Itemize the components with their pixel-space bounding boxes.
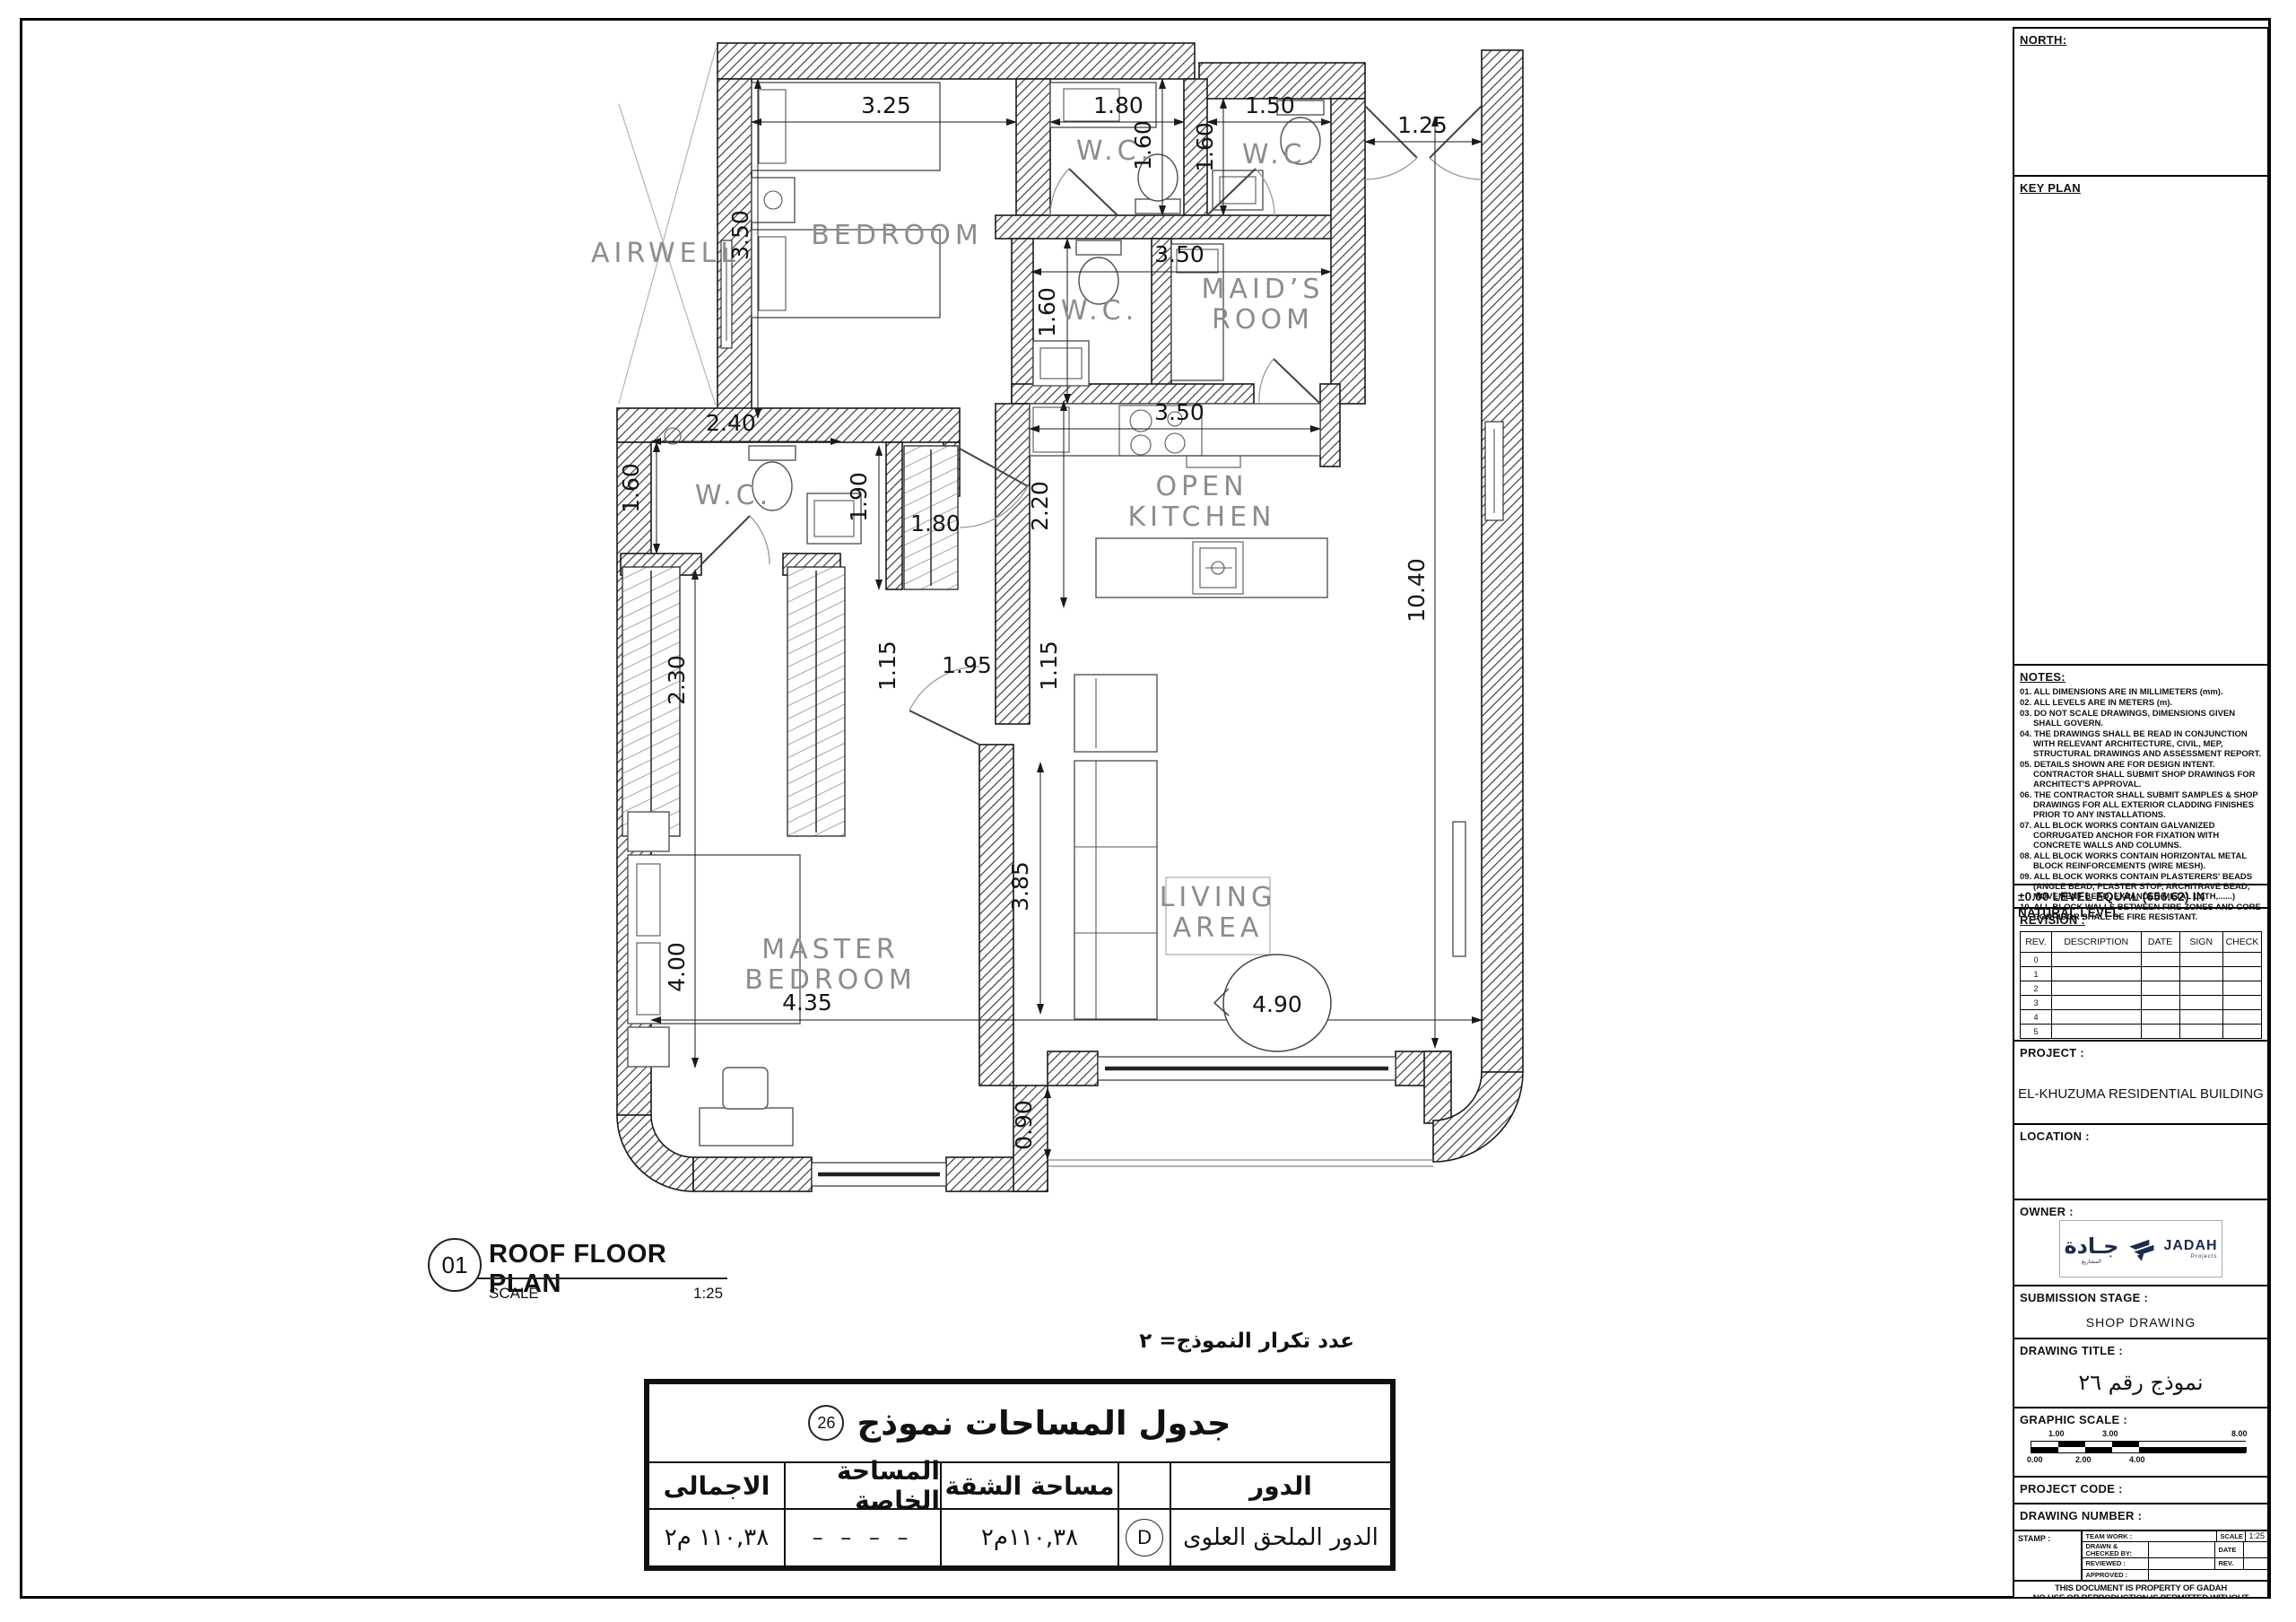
team-work-label: TEAM WORK :	[2083, 1531, 2217, 1541]
owner-logo: جـادة المشاريع JADAH Projects	[2059, 1220, 2222, 1278]
revision-section: REVISION : REV. DESCRIPTION DATE SIGN CH…	[2014, 909, 2267, 1042]
key-plan-section: KEY PLAN	[2014, 177, 2267, 666]
scale-bar-segment	[2058, 1447, 2085, 1452]
submission-section: SUBMISSION STAGE : SHOP DRAWING	[2014, 1286, 2267, 1339]
approved-label: APPROVED :	[2083, 1570, 2149, 1580]
scale-bar-segment	[2031, 1447, 2058, 1452]
revision-table: REV. DESCRIPTION DATE SIGN CHECK 012345	[2020, 931, 2262, 1039]
submission-label: SUBMISSION STAGE :	[2020, 1291, 2148, 1304]
desc-col: DESCRIPTION	[2051, 932, 2141, 953]
scale-tick: 8.00	[2231, 1429, 2248, 1438]
location-section: LOCATION :	[2014, 1125, 2267, 1200]
plan-title: 01 ROOF FLOOR PLAN SCALE 1:25	[422, 1234, 744, 1315]
scale-tick: 3.00	[2102, 1429, 2118, 1438]
cell-total: ١١٠,٣٨ م٢	[649, 1510, 784, 1565]
rev-value	[2244, 1558, 2267, 1568]
revision-empty-cell	[2051, 1025, 2141, 1039]
cell-private: – – – –	[786, 1510, 940, 1565]
scale-tick: 0.00	[2027, 1455, 2043, 1464]
note-item: 06. THE CONTRACTOR SHALL SUBMIT SAMPLES …	[2020, 790, 2262, 820]
revision-empty-cell	[2179, 996, 2222, 1010]
level-note-section: ±0.00 LEVEL EQUAL (656.62) IN NATURAL LE…	[2014, 885, 2267, 909]
scale-tick: 2.00	[2075, 1455, 2092, 1464]
revision-empty-cell	[2179, 967, 2222, 981]
revision-label: REVISION :	[2020, 913, 2085, 927]
revision-empty-cell	[2141, 996, 2179, 1010]
col-flat-area: مساحة الشقة	[942, 1463, 1118, 1508]
revision-empty-cell	[2222, 967, 2261, 981]
title-underline	[478, 1278, 727, 1279]
logo-latin-sub: Projects	[2163, 1254, 2217, 1260]
note-item: 08. ALL BLOCK WORKS CONTAIN HORIZONTAL M…	[2020, 851, 2262, 871]
logo-arabic-text: جـادة المشاريع	[2064, 1234, 2118, 1265]
stamp-section: STAMP : TEAM WORK : SCALE 1:25 DRAWN & C…	[2014, 1531, 2267, 1582]
note-item: 07. ALL BLOCK WORKS CONTAIN GALVANIZED C…	[2020, 821, 2262, 850]
note-item: 03. DO NOT SCALE DRAWINGS, DIMENSIONS GI…	[2020, 709, 2262, 728]
revision-empty-cell	[2141, 953, 2179, 967]
revision-empty-cell	[2222, 1010, 2261, 1025]
col-floor: الدور	[1171, 1463, 1390, 1508]
revision-empty-cell	[2141, 1025, 2179, 1039]
title-block: NORTH: KEY PLAN NOTES: 01. ALL DIMENSION…	[2013, 27, 2269, 1599]
scale-bar-segment	[2112, 1447, 2139, 1452]
project-name: EL-KHUZUMA RESIDENTIAL BUILDING	[2014, 1086, 2267, 1102]
note-item: 02. ALL LEVELS ARE IN METERS (m).	[2020, 698, 2262, 708]
owner-section: OWNER : جـادة المشاريع JADAH Projects	[2014, 1200, 2267, 1286]
scale-cell-label: SCALE	[2217, 1531, 2246, 1541]
note-item: 01. ALL DIMENSIONS ARE IN MILLIMETERS (m…	[2020, 687, 2262, 697]
revision-empty-cell	[2222, 981, 2261, 996]
drawing-sheet: { "plan": { "title": {"number":"01","nam…	[0, 0, 2296, 1622]
revision-empty-cell	[2051, 996, 2141, 1010]
logo-latin-text: JADAH Projects	[2163, 1238, 2217, 1260]
rev-col: REV.	[2021, 932, 2052, 953]
scale-cell-value: 1:25	[2246, 1531, 2267, 1541]
rev-label: REV.	[2215, 1558, 2244, 1568]
owner-label: OWNER :	[2020, 1205, 2074, 1218]
revision-empty-cell	[2222, 996, 2261, 1010]
drawing-title-value: نموذج رقم ٢٦	[2014, 1370, 2267, 1395]
revision-empty-cell	[2179, 1010, 2222, 1025]
project-code-label: PROJECT CODE :	[2020, 1482, 2123, 1496]
revision-empty-cell	[2051, 981, 2141, 996]
drawn-label: DRAWN & CHECKED BY:	[2083, 1542, 2149, 1557]
col-private-area: المساحة الخاصة	[786, 1463, 940, 1508]
sheet-border	[20, 18, 2271, 1599]
project-label: PROJECT :	[2020, 1046, 2084, 1060]
area-table: جدول المساحات نموذج 26 الاجمالى المساحة …	[644, 1379, 1396, 1571]
revision-empty-cell	[2222, 953, 2261, 967]
date-col: DATE	[2141, 932, 2179, 953]
date-label: DATE	[2215, 1542, 2244, 1557]
date-value	[2244, 1542, 2267, 1557]
revision-empty-cell	[2141, 967, 2179, 981]
approved-value	[2149, 1570, 2267, 1580]
cell-floor: الدور الملحق العلوى	[1171, 1510, 1390, 1565]
revision-empty-cell	[2141, 1010, 2179, 1025]
scale-bar-segment	[2139, 1447, 2247, 1452]
jadah-logo-icon	[2126, 1234, 2156, 1264]
revision-row-number: 5	[2021, 1025, 2052, 1039]
footer-line-2: NO USE OR REPRODUCTION IS PERMITTED WITH…	[2016, 1594, 2266, 1599]
stamp-label: STAMP :	[2014, 1531, 2083, 1580]
sign-col: SIGN	[2179, 932, 2222, 953]
north-label: NORTH:	[2020, 33, 2066, 47]
footer-notice: THIS DOCUMENT IS PROPERTY OF GADAH NO US…	[2014, 1582, 2267, 1599]
scale-tick: 1.00	[2048, 1429, 2065, 1438]
scale-label: SCALE	[489, 1285, 539, 1303]
detail-number-bubble: 01	[428, 1238, 482, 1292]
col-badge	[1119, 1463, 1170, 1508]
drawing-title-label: DRAWING TITLE :	[2020, 1344, 2123, 1357]
revision-row-number: 1	[2021, 967, 2052, 981]
project-section: PROJECT : EL-KHUZUMA RESIDENTIAL BUILDIN…	[2014, 1042, 2267, 1125]
graphic-scale-label: GRAPHIC SCALE :	[2020, 1413, 2127, 1426]
notes-section: NOTES: 01. ALL DIMENSIONS ARE IN MILLIME…	[2014, 666, 2267, 885]
note-item: 04. THE DRAWINGS SHALL BE READ IN CONJUN…	[2020, 729, 2262, 759]
logo-arabic-sub: المشاريع	[2064, 1259, 2118, 1265]
revision-empty-cell	[2179, 981, 2222, 996]
revision-empty-cell	[2179, 1025, 2222, 1039]
drawing-number-section: DRAWING NUMBER :	[2014, 1504, 2267, 1531]
revision-row-number: 3	[2021, 996, 2052, 1010]
scale-tick: 4.00	[2129, 1455, 2145, 1464]
key-plan-label: KEY PLAN	[2020, 181, 2081, 195]
revision-empty-cell	[2179, 953, 2222, 967]
drawing-number-label: DRAWING NUMBER :	[2020, 1509, 2142, 1522]
location-label: LOCATION :	[2020, 1129, 2090, 1143]
revision-empty-cell	[2141, 981, 2179, 996]
scale-value: 1:25	[693, 1285, 723, 1303]
submission-value: SHOP DRAWING	[2014, 1315, 2267, 1330]
area-table-title-text: جدول المساحات نموذج	[857, 1404, 1231, 1443]
reviewed-value	[2149, 1558, 2215, 1568]
reviewed-label: REVIEWED :	[2083, 1558, 2149, 1568]
revision-row-number: 0	[2021, 953, 2052, 967]
area-table-title: جدول المساحات نموذج 26	[649, 1384, 1390, 1461]
revision-empty-cell	[2222, 1025, 2261, 1039]
note-item: 05. DETAILS SHOWN ARE FOR DESIGN INTENT.…	[2020, 760, 2262, 789]
graphic-scale-bar: 1.003.008.000.002.004.00	[2027, 1428, 2253, 1471]
model-repeat-note: عدد تكرار النموذج= ٢	[987, 1330, 1354, 1353]
revision-empty-cell	[2051, 967, 2141, 981]
model-number-badge: 26	[808, 1405, 844, 1441]
scale-bar-segment	[2085, 1447, 2112, 1452]
drawing-title-section: DRAWING TITLE : نموذج رقم ٢٦	[2014, 1339, 2267, 1408]
col-total: الاجمالى	[649, 1463, 784, 1508]
graphic-scale-section: GRAPHIC SCALE : 1.003.008.000.002.004.00	[2014, 1408, 2267, 1478]
revision-row-number: 4	[2021, 1010, 2052, 1025]
cell-badge: D	[1119, 1510, 1170, 1565]
check-col: CHECK	[2222, 932, 2261, 953]
revision-row-number: 2	[2021, 981, 2052, 996]
notes-label: NOTES:	[2020, 670, 2066, 684]
north-section: NORTH:	[2014, 29, 2267, 177]
cell-flat-area: ١١٠,٣٨م٢	[942, 1510, 1118, 1565]
revision-empty-cell	[2051, 1010, 2141, 1025]
project-code-section: PROJECT CODE :	[2014, 1478, 2267, 1504]
revision-empty-cell	[2051, 953, 2141, 967]
drawn-value	[2149, 1542, 2215, 1557]
unit-type-badge: D	[1126, 1519, 1163, 1557]
